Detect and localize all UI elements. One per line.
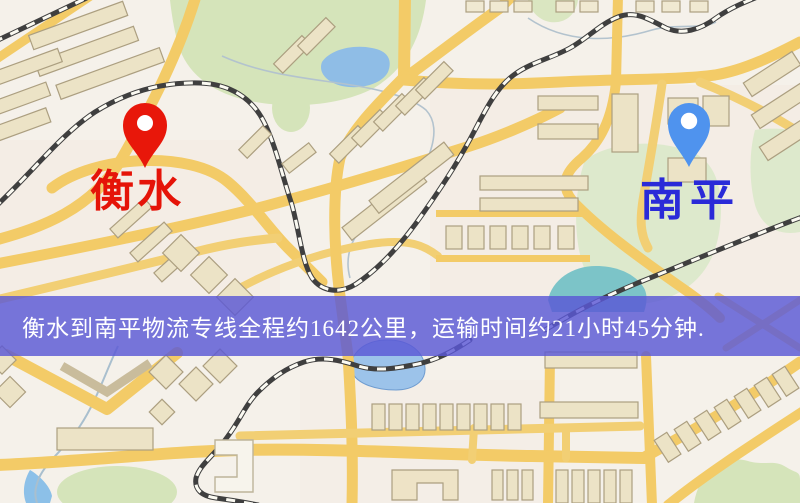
map-canvas [0,0,800,503]
route-info-text: 衡水到南平物流专线全程约1642公里，运输时间约21小时45分钟. [22,309,705,343]
route-info-banner: 衡水到南平物流专线全程约1642公里，运输时间约21小时45分钟. [0,296,800,356]
map-screenshot: 衡水 南平 衡水到南平物流专线全程约1642公里，运输时间约21小时45分钟. [0,0,800,503]
stream-bottom-left [24,470,52,503]
c-shaped-building [215,440,253,492]
destination-city-label: 南平 [640,179,740,223]
origin-city-label: 衡水 [90,170,184,214]
